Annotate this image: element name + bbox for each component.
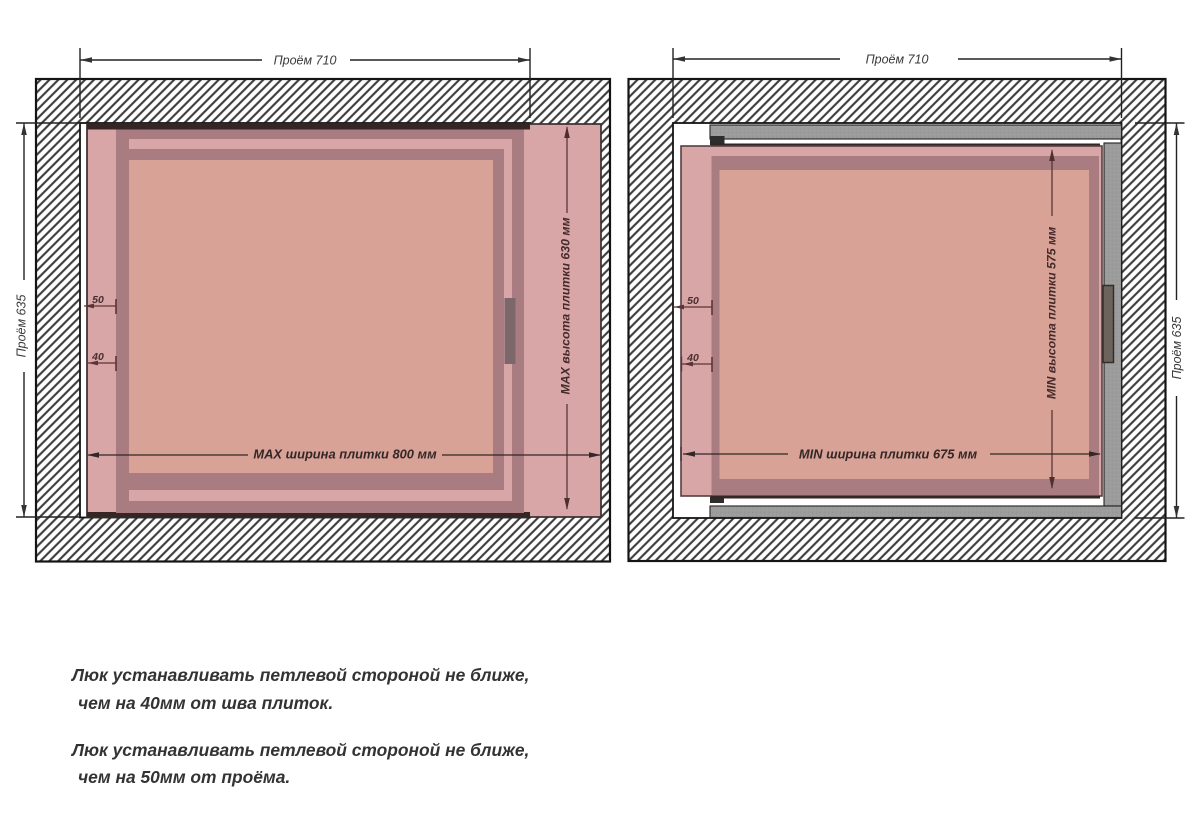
svg-text:MIN высота плитки 575 мм: MIN высота плитки 575 мм bbox=[1045, 227, 1059, 399]
svg-text:MIN ширина плитки 675 мм: MIN ширина плитки 675 мм bbox=[799, 447, 978, 462]
svg-text:Люк устанавливать петлевой сто: Люк устанавливать петлевой стороной не б… bbox=[70, 740, 529, 760]
svg-text:40: 40 bbox=[686, 352, 699, 364]
svg-text:Проём 710: Проём 710 bbox=[866, 53, 929, 67]
svg-text:чем на 50мм от проёма.: чем на 50мм от проёма. bbox=[78, 767, 290, 787]
svg-text:Люк устанавливать петлевой сто: Люк устанавливать петлевой стороной не б… bbox=[70, 665, 529, 685]
svg-text:Проём 635: Проём 635 bbox=[1170, 317, 1184, 380]
svg-text:50: 50 bbox=[92, 294, 104, 306]
svg-text:40: 40 bbox=[91, 351, 104, 363]
svg-text:Проём 635: Проём 635 bbox=[15, 295, 29, 358]
svg-text:MAX ширина плитки 800 мм: MAX ширина плитки 800 мм bbox=[253, 447, 437, 462]
svg-text:Проём 710: Проём 710 bbox=[274, 54, 337, 68]
svg-text:50: 50 bbox=[687, 295, 699, 307]
svg-text:чем на 40мм от шва плиток.: чем на 40мм от шва плиток. bbox=[78, 693, 333, 713]
svg-text:MAX высота плитки 630 мм: MAX высота плитки 630 мм bbox=[559, 217, 573, 394]
